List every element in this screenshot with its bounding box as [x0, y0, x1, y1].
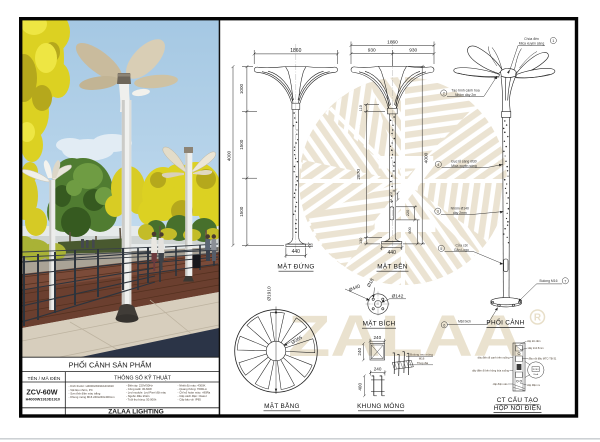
- svg-text:dây 2x2.5mm: dây 2x2.5mm: [528, 346, 544, 350]
- svg-text:TÊN / MÃ ĐÈN: TÊN / MÃ ĐÈN: [28, 374, 61, 382]
- svg-text:440: 440: [388, 250, 397, 256]
- svg-text:1860: 1860: [387, 39, 398, 45]
- svg-text:Ø142: Ø142: [392, 294, 404, 300]
- svg-text:Gắn Logo: Gắn Logo: [454, 247, 469, 252]
- svg-text:Ø440: Ø440: [348, 283, 361, 293]
- svg-text:ZCV-60W: ZCV-60W: [26, 387, 57, 396]
- svg-text:30mA: 30mA: [533, 373, 539, 376]
- svg-text:Mặt bích: Mặt bích: [458, 319, 471, 323]
- svg-text:130: 130: [359, 238, 363, 244]
- svg-text:220: 220: [406, 210, 410, 216]
- svg-text:dày 2mm: dày 2mm: [453, 211, 467, 215]
- svg-text:240: 240: [357, 348, 362, 356]
- svg-text:1500: 1500: [239, 139, 244, 150]
- svg-text:110: 110: [359, 105, 363, 111]
- svg-text:Nhôm dày 2m: Nhôm dày 2m: [455, 93, 476, 97]
- svg-text:440: 440: [292, 249, 301, 255]
- svg-text:RCBO: RCBO: [533, 369, 539, 371]
- svg-text:3: 3: [437, 210, 439, 214]
- svg-text:Bulong M16: Bulong M16: [539, 279, 557, 283]
- svg-text:Ø1910: Ø1910: [267, 286, 273, 301]
- svg-text:1860: 1860: [290, 48, 301, 54]
- svg-text:cấp lên đèn: cấp lên đèn: [527, 339, 541, 343]
- svg-text:22: 22: [389, 199, 393, 203]
- svg-text:240: 240: [374, 367, 382, 372]
- svg-text:10: 10: [310, 243, 314, 247]
- svg-text:MẶT BÊN: MẶT BÊN: [377, 261, 407, 270]
- svg-text:1500: 1500: [239, 206, 244, 217]
- svg-text:MẶT BÍCH: MẶT BÍCH: [363, 318, 396, 327]
- svg-text:Thép đai: Thép đai: [417, 361, 429, 365]
- svg-text:H4000W1910D1910: H4000W1910D1910: [26, 397, 60, 401]
- svg-text:930: 930: [368, 48, 376, 54]
- svg-text:Chóa đèn: Chóa đèn: [524, 37, 539, 41]
- svg-text:5: 5: [440, 247, 442, 251]
- svg-text:PHỐI CẢNH SẢN PHẨM: PHỐI CẢNH SẢN PHẨM: [69, 360, 152, 370]
- svg-text:MẶT BẰNG: MẶT BẰNG: [264, 401, 300, 410]
- svg-text:Mica xuyên sáng: Mica xuyên sáng: [451, 164, 477, 168]
- svg-text:7: 7: [564, 279, 566, 283]
- svg-text:4000: 4000: [423, 152, 429, 163]
- svg-text:dây điện đi cạnh trên xuống: dây điện đi cạnh trên xuống: [478, 356, 510, 360]
- svg-text:CT CẤU TẠO: CT CẤU TẠO: [497, 394, 538, 404]
- svg-text:6: 6: [443, 323, 445, 327]
- svg-text:cấp điện vào: cấp điện vào: [493, 382, 508, 386]
- svg-text:- Cấp bảo vệ: IP65: - Cấp bảo vệ: IP65: [178, 397, 202, 401]
- svg-text:2: 2: [443, 92, 445, 96]
- svg-text:KHUNG MÓNG: KHUNG MÓNG: [357, 401, 405, 410]
- svg-text:1000: 1000: [239, 83, 244, 94]
- svg-text:240: 240: [373, 335, 381, 340]
- svg-text:400: 400: [357, 383, 362, 391]
- svg-text:Nhôm Ø140: Nhôm Ø140: [451, 207, 469, 211]
- svg-text:dây điện đi bên hông búa xuống: dây điện đi bên hông búa xuống: [472, 369, 509, 373]
- svg-text:Đục lỗ sáng Ø30: Đục lỗ sáng Ø30: [451, 159, 476, 164]
- svg-text:THÔNG SỐ KỸ THUẬT: THÔNG SỐ KỸ THUẬT: [114, 375, 172, 382]
- svg-text:4: 4: [437, 163, 439, 167]
- svg-text:Mica xuyên sáng: Mica xuyên sáng: [519, 41, 545, 45]
- svg-text:- Khung móng M16 240x240x4: - Khung móng M16 240x240x400mm: [69, 395, 116, 399]
- svg-text:2870: 2870: [356, 169, 362, 180]
- svg-text:Tạo hình cánh hoa: Tạo hình cánh hoa: [451, 88, 479, 92]
- svg-text:R: R: [534, 313, 542, 324]
- svg-text:1: 1: [552, 39, 554, 43]
- svg-text:930: 930: [409, 48, 417, 54]
- svg-text:70: 70: [389, 192, 393, 196]
- svg-text:- Tuổi thọ bóng: 50.000h: - Tuổi thọ bóng: 50.000h: [126, 397, 157, 401]
- svg-text:đầu nối đấu MTC-TB-31: đầu nối đấu MTC-TB-31: [529, 356, 557, 360]
- svg-text:MẶT ĐỨNG: MẶT ĐỨNG: [277, 261, 314, 270]
- svg-text:600: 600: [408, 227, 412, 233]
- svg-text:Cửa cột: Cửa cột: [455, 244, 467, 248]
- svg-text:cấp điện ra: cấp điện ra: [527, 383, 540, 387]
- svg-text:4000: 4000: [227, 150, 232, 161]
